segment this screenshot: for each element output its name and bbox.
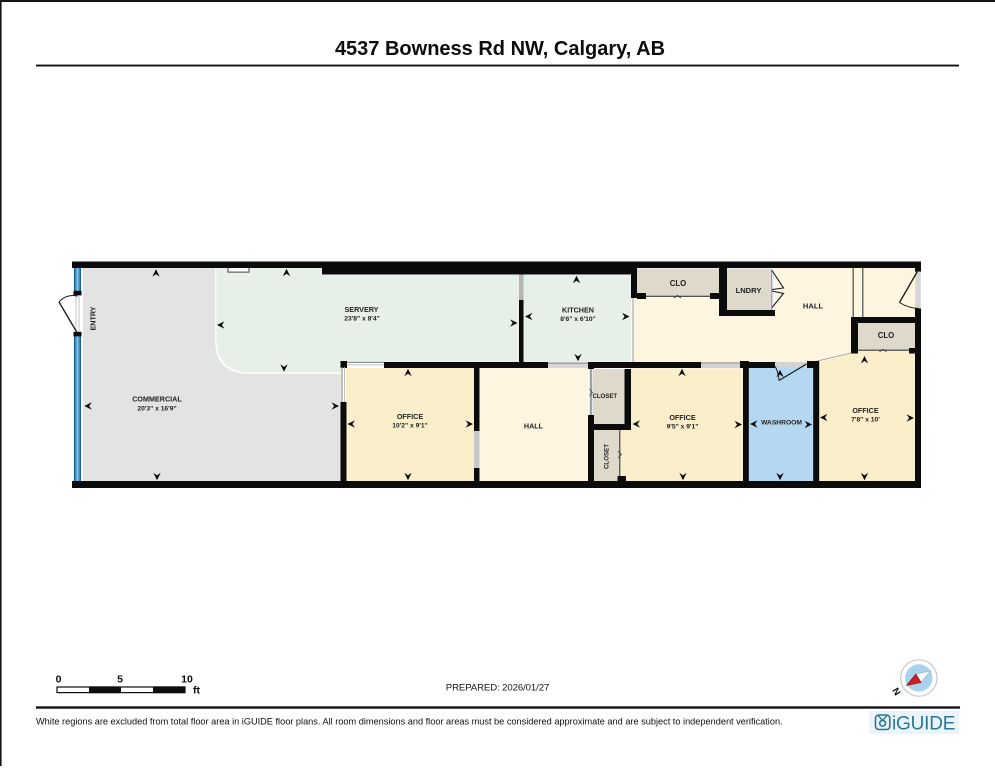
svg-text:ENTRY: ENTRY xyxy=(89,306,98,330)
svg-text:10'2" x 9'1": 10'2" x 9'1" xyxy=(392,423,428,430)
svg-text:20'3" x 16'9": 20'3" x 16'9" xyxy=(137,406,176,413)
svg-text:8'6" x 6'10": 8'6" x 6'10" xyxy=(560,316,596,323)
svg-text:CLO: CLO xyxy=(878,331,894,340)
svg-text:CLOSET: CLOSET xyxy=(604,444,611,469)
svg-text:iGUIDE: iGUIDE xyxy=(892,714,955,735)
svg-text:4537 Bowness Rd NW, Calgary, A: 4537 Bowness Rd NW, Calgary, AB xyxy=(335,38,665,60)
svg-text:LNDRY: LNDRY xyxy=(736,286,762,295)
svg-text:OFFICE: OFFICE xyxy=(397,412,424,421)
svg-text:KITCHEN: KITCHEN xyxy=(562,306,594,315)
svg-text:COMMERCIAL: COMMERCIAL xyxy=(132,395,182,404)
svg-text:9'5" x 9'1": 9'5" x 9'1" xyxy=(667,424,699,431)
svg-text:SERVERY: SERVERY xyxy=(345,305,379,314)
svg-text:5: 5 xyxy=(117,674,123,686)
svg-text:OFFICE: OFFICE xyxy=(669,413,696,422)
svg-text:WASHROOM: WASHROOM xyxy=(761,420,802,427)
svg-text:CLOSET: CLOSET xyxy=(592,393,617,400)
svg-text:10: 10 xyxy=(181,674,193,686)
svg-text:ft: ft xyxy=(193,685,200,697)
svg-text:HALL: HALL xyxy=(524,422,544,431)
svg-text:OFFICE: OFFICE xyxy=(852,406,879,415)
svg-text:White regions are excluded fro: White regions are excluded from total fl… xyxy=(36,717,783,727)
svg-text:HALL: HALL xyxy=(803,302,824,311)
svg-text:0: 0 xyxy=(56,674,62,686)
svg-text:7'8" x 10': 7'8" x 10' xyxy=(851,417,880,424)
svg-text:23'8" x 8'4": 23'8" x 8'4" xyxy=(344,316,380,323)
svg-text:PREPARED: 2026/01/27: PREPARED: 2026/01/27 xyxy=(446,682,549,693)
svg-text:CLO: CLO xyxy=(670,279,686,288)
